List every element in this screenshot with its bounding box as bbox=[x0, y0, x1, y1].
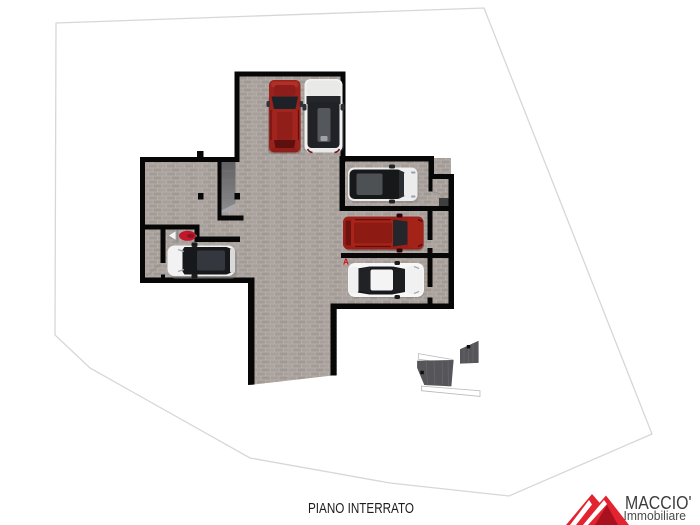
svg-text:Immobiliare: Immobiliare bbox=[624, 509, 687, 523]
svg-text:PIANO INTERRATO: PIANO INTERRATO bbox=[308, 500, 414, 517]
svg-text:A: A bbox=[343, 258, 349, 267]
